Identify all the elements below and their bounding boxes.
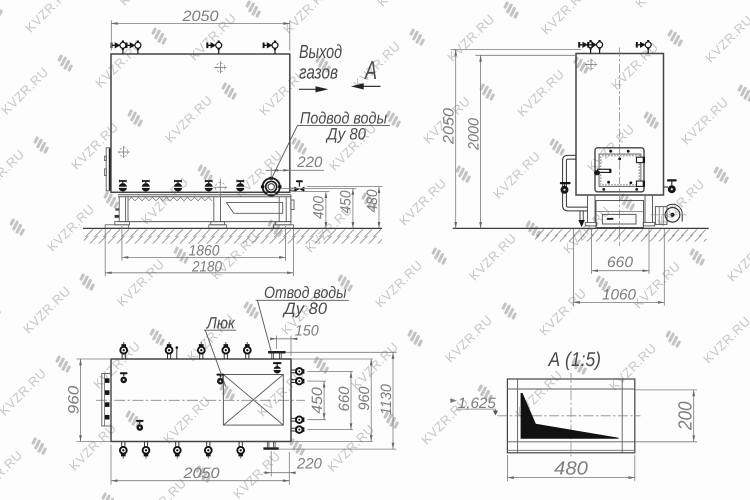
svg-text:Выход: Выход xyxy=(299,42,342,63)
svg-text:960: 960 xyxy=(356,386,373,411)
svg-text:450: 450 xyxy=(309,387,326,414)
svg-text:480: 480 xyxy=(364,189,381,213)
svg-text:220: 220 xyxy=(296,154,323,171)
svg-text:480: 480 xyxy=(554,459,588,480)
svg-text:Ду 80: Ду 80 xyxy=(282,300,328,318)
svg-text:2050: 2050 xyxy=(182,465,220,482)
svg-text:150: 150 xyxy=(295,323,320,340)
svg-text:200: 200 xyxy=(676,401,697,431)
svg-text:1130: 1130 xyxy=(378,383,395,415)
svg-text:2050: 2050 xyxy=(441,107,458,145)
svg-text:960: 960 xyxy=(65,385,82,414)
svg-text:220: 220 xyxy=(296,456,323,473)
svg-text:660: 660 xyxy=(336,386,353,412)
svg-text:А (1:5): А (1:5) xyxy=(548,349,601,371)
svg-text:1060: 1060 xyxy=(602,286,637,303)
svg-text:400: 400 xyxy=(311,195,328,219)
svg-text:А: А xyxy=(364,55,377,85)
svg-text:2180: 2180 xyxy=(191,258,222,275)
svg-text:1860: 1860 xyxy=(189,243,221,260)
svg-text:2000: 2000 xyxy=(465,117,482,151)
svg-text:2050: 2050 xyxy=(181,8,219,25)
svg-text:Ду 80: Ду 80 xyxy=(325,126,367,144)
svg-text:газов: газов xyxy=(299,63,338,84)
svg-text:450: 450 xyxy=(338,190,355,214)
svg-text:Люк: Люк xyxy=(206,314,236,332)
svg-text:660: 660 xyxy=(607,254,634,271)
